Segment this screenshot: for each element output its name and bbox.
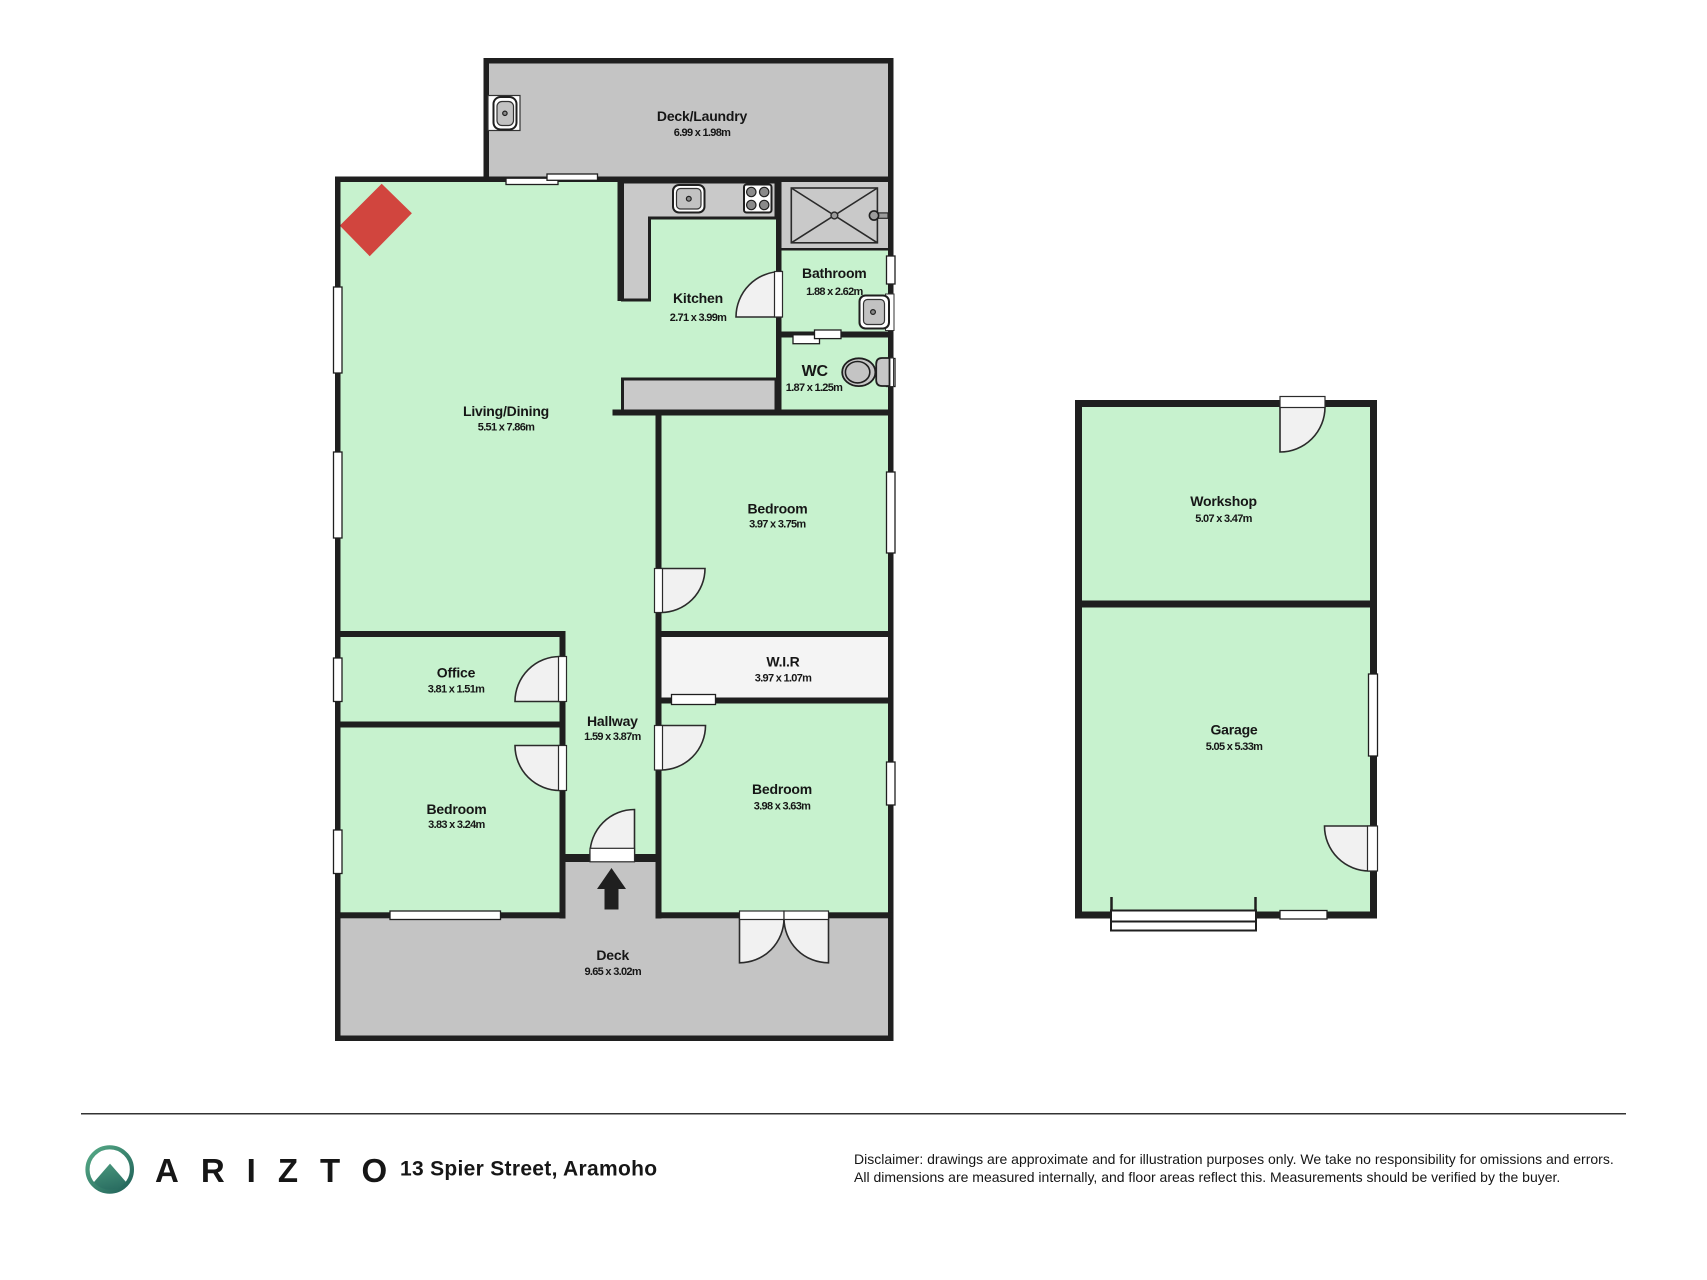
svg-text:9.65 x 3.02m: 9.65 x 3.02m bbox=[584, 966, 641, 978]
svg-text:WC: WC bbox=[802, 363, 829, 380]
svg-text:Deck/Laundry: Deck/Laundry bbox=[657, 108, 748, 124]
svg-text:Disclaimer: drawings are appro: Disclaimer: drawings are approximate and… bbox=[854, 1151, 1614, 1167]
svg-text:Deck: Deck bbox=[596, 947, 629, 963]
svg-text:1.88 x 2.62m: 1.88 x 2.62m bbox=[806, 286, 863, 298]
svg-text:6.99 x 1.98m: 6.99 x 1.98m bbox=[674, 127, 731, 139]
svg-text:Bathroom: Bathroom bbox=[802, 265, 867, 281]
svg-text:5.05 x 5.33m: 5.05 x 5.33m bbox=[1206, 741, 1263, 753]
svg-text:Bedroom: Bedroom bbox=[426, 801, 486, 817]
svg-text:W.I.R: W.I.R bbox=[766, 654, 799, 670]
svg-text:1.59 x 3.87m: 1.59 x 3.87m bbox=[584, 731, 641, 743]
svg-text:13 Spier Street, Aramoho: 13 Spier Street, Aramoho bbox=[400, 1158, 657, 1181]
svg-text:ARIZTO: ARIZTO bbox=[155, 1152, 409, 1189]
svg-text:Office: Office bbox=[437, 665, 476, 681]
svg-text:3.97 x 1.07m: 3.97 x 1.07m bbox=[755, 673, 812, 685]
svg-text:Bedroom: Bedroom bbox=[752, 781, 812, 797]
svg-text:Hallway: Hallway bbox=[587, 713, 638, 729]
svg-text:2.71 x 3.99m: 2.71 x 3.99m bbox=[670, 312, 727, 324]
svg-text:5.51 x 7.86m: 5.51 x 7.86m bbox=[478, 422, 535, 434]
svg-text:Workshop: Workshop bbox=[1190, 493, 1257, 509]
svg-text:3.81 x 1.51m: 3.81 x 1.51m bbox=[428, 684, 485, 696]
svg-text:Bedroom: Bedroom bbox=[747, 501, 807, 517]
svg-text:3.97 x 3.75m: 3.97 x 3.75m bbox=[749, 519, 806, 531]
svg-text:All dimensions are measured in: All dimensions are measured internally, … bbox=[854, 1169, 1560, 1185]
svg-text:Living/Dining: Living/Dining bbox=[463, 403, 549, 419]
svg-text:3.83 x 3.24m: 3.83 x 3.24m bbox=[428, 819, 485, 831]
svg-text:3.98 x 3.63m: 3.98 x 3.63m bbox=[754, 801, 811, 813]
svg-text:1.87 x 1.25m: 1.87 x 1.25m bbox=[786, 382, 843, 394]
svg-text:5.07 x 3.47m: 5.07 x 3.47m bbox=[1195, 513, 1252, 525]
svg-text:Kitchen: Kitchen bbox=[673, 290, 723, 306]
svg-text:Garage: Garage bbox=[1210, 722, 1257, 738]
